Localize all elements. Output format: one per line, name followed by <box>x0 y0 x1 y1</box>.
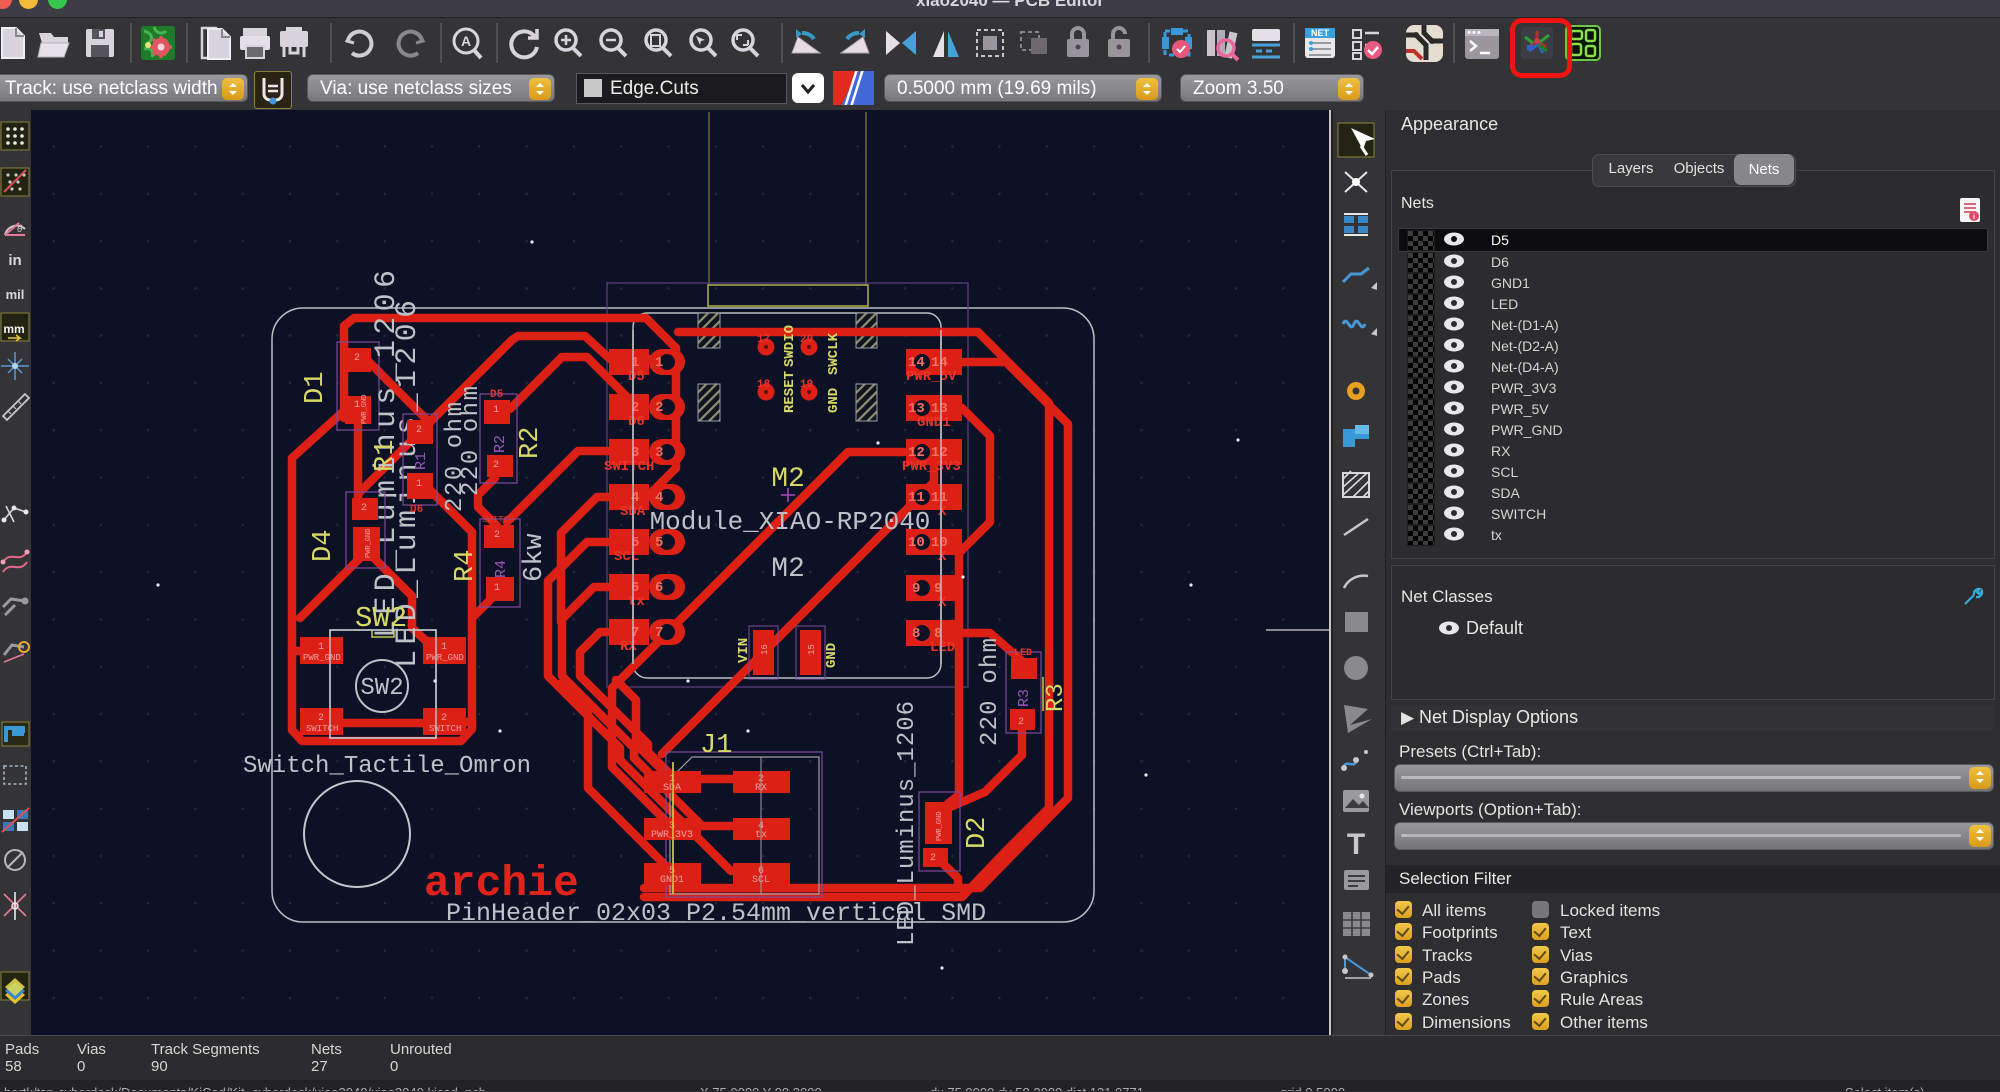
svg-text:mm: mm <box>3 322 24 336</box>
svg-text:X: X <box>938 504 947 520</box>
svg-text:2: 2 <box>318 713 324 724</box>
svg-text:SWITCH: SWITCH <box>306 724 338 734</box>
svg-text:6kw: 6kw <box>520 533 550 582</box>
svg-text:2: 2 <box>441 713 447 724</box>
svg-text:Switch_Tactile_Omron: Switch_Tactile_Omron <box>243 753 531 780</box>
svg-text:2: 2 <box>494 530 500 541</box>
svg-text:5: 5 <box>655 535 663 551</box>
svg-text:SW2: SW2 <box>360 675 403 702</box>
svg-text:2: 2 <box>1018 717 1024 728</box>
svg-text:6: 6 <box>655 580 663 596</box>
svg-text:1: 1 <box>354 400 360 411</box>
svg-text:LED_Luminus_1206: LED_Luminus_1206 <box>894 701 921 946</box>
svg-text:mil: mil <box>6 287 25 302</box>
svg-text:19: 19 <box>800 379 813 391</box>
svg-text:R2: R2 <box>516 427 546 459</box>
svg-text:Module_XIAO-RP2040: Module_XIAO-RP2040 <box>650 507 931 537</box>
svg-text:1: 1 <box>655 355 663 371</box>
svg-text:1: 1 <box>416 479 422 490</box>
svg-text:R1: R1 <box>413 452 430 470</box>
svg-text:9: 9 <box>912 581 920 597</box>
svg-text:PWR_5V: PWR_5V <box>906 369 957 385</box>
svg-text:PWR_3V3: PWR_3V3 <box>651 830 693 841</box>
svg-text:PWR_GND: PWR_GND <box>303 653 341 663</box>
svg-text:J1: J1 <box>700 731 732 761</box>
svg-text:R1: R1 <box>371 440 401 472</box>
svg-text:LED: LED <box>930 640 955 656</box>
svg-text:D5: D5 <box>628 369 645 385</box>
svg-text:R3: R3 <box>1016 689 1033 707</box>
svg-text:17: 17 <box>757 334 770 346</box>
svg-text:SDA: SDA <box>663 783 681 794</box>
svg-text:LED: LED <box>1014 648 1032 659</box>
svg-text:2: 2 <box>930 853 936 864</box>
svg-text:θ: θ <box>17 224 23 235</box>
svg-text:X: X <box>938 595 947 611</box>
svg-text:SCL: SCL <box>614 549 639 565</box>
svg-text:NET: NET <box>1311 28 1330 38</box>
svg-text:GND1: GND1 <box>660 875 684 886</box>
svg-text:1: 1 <box>493 405 499 416</box>
svg-text:8: 8 <box>912 626 920 642</box>
svg-text:20: 20 <box>800 334 813 346</box>
svg-text:7: 7 <box>655 625 663 641</box>
svg-text:GND: GND <box>824 643 840 668</box>
svg-text:A: A <box>461 33 471 49</box>
svg-text:i: i <box>1973 214 1975 221</box>
svg-text:15: 15 <box>807 644 817 655</box>
svg-text:R4: R4 <box>451 550 481 582</box>
svg-text:tx: tx <box>628 594 645 610</box>
svg-text:3: 3 <box>655 445 663 461</box>
svg-text:2: 2 <box>416 425 422 436</box>
svg-text:2: 2 <box>354 353 360 364</box>
svg-text:D2: D2 <box>963 817 993 849</box>
svg-text:1: 1 <box>318 642 324 653</box>
svg-text:SWITCH: SWITCH <box>482 515 514 525</box>
svg-text:PWR_GND: PWR_GND <box>361 395 369 424</box>
svg-text:2: 2 <box>493 460 499 471</box>
svg-text:SWCLK: SWCLK <box>826 332 842 375</box>
svg-text:SWDIO: SWDIO <box>782 325 798 367</box>
svg-text:RESET: RESET <box>782 371 798 413</box>
svg-text:R4: R4 <box>493 560 510 578</box>
svg-text:GND1: GND1 <box>917 415 951 431</box>
svg-text:PWR_GND: PWR_GND <box>365 529 373 558</box>
svg-text:16: 16 <box>760 644 770 655</box>
svg-text:SWITCH: SWITCH <box>429 724 461 734</box>
svg-text:GND: GND <box>826 388 842 413</box>
svg-text:D6: D6 <box>628 414 645 430</box>
svg-text:220 ohm: 220 ohm <box>977 638 1004 746</box>
svg-text:D4: D4 <box>309 530 339 562</box>
svg-text:PWR_GND: PWR_GND <box>936 812 944 841</box>
svg-text:PWR_GND: PWR_GND <box>426 653 464 663</box>
svg-text:10: 10 <box>908 535 925 551</box>
svg-text:11: 11 <box>908 490 925 506</box>
svg-text:in: in <box>8 252 21 269</box>
svg-text:18: 18 <box>757 379 771 391</box>
svg-text:2: 2 <box>361 503 367 514</box>
svg-text:R3: R3 <box>1043 683 1070 712</box>
svg-text:1: 1 <box>494 583 500 594</box>
svg-text:M2: M2 <box>771 554 805 585</box>
svg-text:1: 1 <box>441 642 447 653</box>
svg-text:4: 4 <box>655 490 663 506</box>
svg-text:X: X <box>938 549 947 565</box>
svg-text:RX: RX <box>620 639 637 655</box>
svg-text:SWITCH: SWITCH <box>604 459 654 475</box>
svg-text:220 ohm: 220 ohm <box>458 386 485 496</box>
svg-text:VIN: VIN <box>736 638 752 663</box>
svg-text:PWR_3V3: PWR_3V3 <box>902 459 961 475</box>
svg-text:D6: D6 <box>410 504 423 516</box>
svg-text:R2: R2 <box>492 435 509 453</box>
svg-text:T: T <box>1347 828 1365 861</box>
svg-text:D5: D5 <box>490 389 504 401</box>
svg-text:D1: D1 <box>301 372 331 404</box>
svg-text:2: 2 <box>655 400 663 416</box>
